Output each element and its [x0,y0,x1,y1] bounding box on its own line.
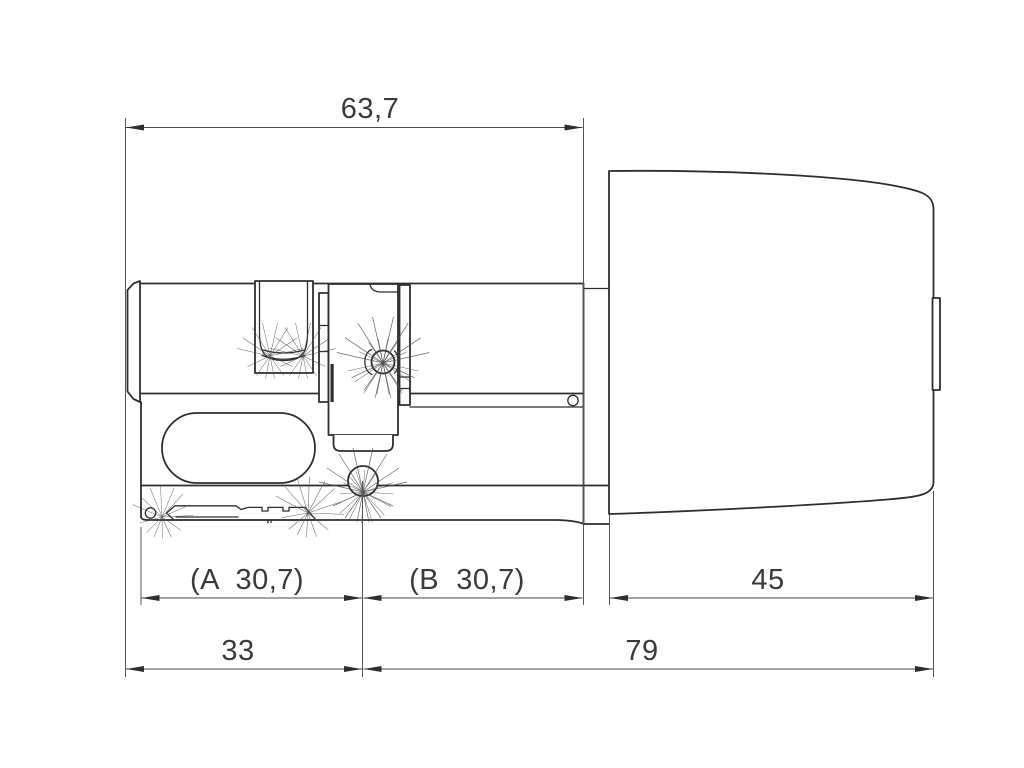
arrowhead-left [126,666,144,672]
dim-label-knob-length: 45 [751,564,784,596]
mounting-clip [319,284,410,451]
arrowhead-right [565,595,583,601]
dim-label-overall: 63,7 [341,93,399,125]
arrowhead-left [610,595,628,601]
dimension-knob-length: 45 [610,564,933,601]
oval-profile [162,413,315,483]
knob-outline [609,171,934,514]
knob-tip [933,298,941,390]
dim-label-half-b: (B 30,7) [409,564,525,596]
clip-inner-bar [331,364,334,402]
dimension-body-length: 33 [126,635,362,672]
pin-hole [568,395,578,405]
dimension-knob-side-length: 79 [364,635,934,672]
clip-rail-right [400,285,411,405]
clip-foot [334,435,394,451]
dim-label-half-a: (A 30,7) [190,564,304,596]
burst-key-left [128,481,198,543]
cylinder-knob-drawing: 63,7 (A 30,7) (B 30,7) 45 [0,0,1024,768]
arrowhead-right [915,666,933,672]
front-cap [128,281,141,402]
arrowhead-left [364,595,382,601]
dimension-half-b: (B 30,7) [364,564,583,601]
arrowhead-right [344,595,362,601]
arrowhead-left [142,595,160,601]
dim-label-body-length: 33 [221,635,254,667]
dimension-overall-top: 63,7 [126,93,583,131]
technical-drawing-page: 63,7 (A 30,7) (B 30,7) 45 [0,0,1024,768]
arrowhead-left [364,666,382,672]
clip-rail-left [319,293,329,402]
arrowhead-left [126,125,144,131]
dimension-half-a: (A 30,7) [142,564,363,601]
arrowhead-right [344,666,362,672]
key-outline [167,506,317,520]
knob [609,171,940,514]
arrowhead-right [565,125,583,131]
dim-label-knob-side-length: 79 [625,635,658,667]
arrowhead-right [915,595,933,601]
